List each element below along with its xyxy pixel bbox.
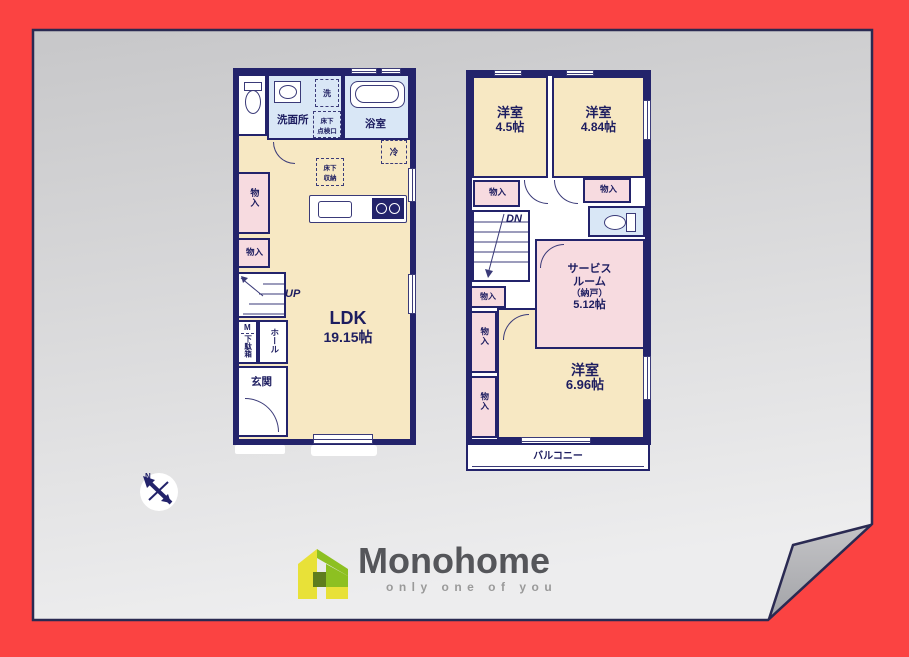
bathroom-label: 浴室 [365, 118, 386, 130]
logo-house-icon [296, 542, 350, 600]
service-door-arc [540, 244, 564, 268]
closet-2f-d: 物入 [470, 286, 506, 308]
bathtub-icon [350, 81, 405, 108]
balcony-label: バルコニー [468, 451, 648, 463]
shoe-box-1f: M 下駄箱 [237, 320, 258, 364]
entrance-step [235, 445, 285, 454]
kitchen-counter [309, 195, 407, 223]
kitchen-sink-icon [318, 201, 352, 218]
window-1f-top-b [381, 68, 401, 74]
north-arrow: N [137, 470, 181, 514]
service-room-line4: 5.12帖 [537, 299, 642, 312]
bedroom-a-label: 洋室 4.5帖 [474, 106, 546, 135]
closet-2f-a: 物入 [473, 180, 520, 207]
toilet-2f-tank [626, 213, 636, 232]
floor-hatch-label-2: 点検口 [317, 125, 337, 135]
stairs-dn-label: DN [506, 213, 522, 226]
fridge-space: 冷 [381, 140, 407, 164]
toilet-tank [244, 82, 262, 91]
service-room-line3: （納戸） [537, 288, 642, 298]
bedroom-b-size: 4.84帖 [554, 121, 643, 135]
ldk-porch [311, 445, 377, 456]
bedroom-b-label: 洋室 4.84帖 [554, 106, 643, 135]
room-toilet-1f [237, 74, 267, 136]
entrance-label: 玄関 [251, 376, 272, 388]
entrance-1f: 玄関 [237, 366, 288, 437]
room-bathroom: 浴室 [343, 74, 410, 140]
closet-2f-b: 物入 [583, 178, 631, 203]
closet-2f-e: 物入 [470, 311, 497, 373]
closet-1f-small: 物入 [237, 238, 270, 268]
window-1f-bottom [313, 434, 373, 444]
flyer-canvas: 洗面所 洗 床下 点検口 浴室 床下 収納 [0, 0, 909, 657]
hall-label: ホール [269, 328, 279, 354]
bedroom-c-door-arc [503, 314, 529, 340]
closet-1f-tall-label: 物入 [249, 188, 259, 208]
washroom-label: 洗面所 [277, 114, 309, 126]
bedroom-c-name: 洋室 [545, 362, 625, 378]
floor-storage-label-1: 床下 [324, 162, 337, 172]
window-2f-right-a [643, 100, 651, 140]
room-toilet-2f [588, 206, 645, 237]
stairs-up-label: UP [285, 288, 300, 301]
ldk-label: LDK 19.15帖 [303, 308, 393, 345]
entrance-door-arc [245, 398, 279, 432]
shoe-box-label: 下駄箱 [243, 335, 252, 358]
toilet-2f-icon [604, 215, 626, 230]
bedroom-a-name: 洋室 [474, 106, 546, 121]
logo: Monohome only one of you [296, 538, 626, 608]
closet-2f-f: 物入 [470, 376, 497, 438]
service-room-label: サービス ルーム （納戸） 5.12帖 [537, 263, 642, 311]
ldk-name: LDK [303, 308, 393, 329]
closet-2f-d-label: 物入 [480, 292, 496, 301]
closet-2f-a-label: 物入 [489, 188, 506, 198]
hall-1f: ホール [258, 320, 288, 364]
ldk-size: 19.15帖 [303, 329, 393, 345]
room-bedroom-b: 洋室 4.84帖 [552, 76, 645, 178]
window-2f-top-a [494, 70, 522, 76]
floor-storage-label-2: 収納 [324, 172, 337, 182]
closet-1f-tall: 物入 [237, 172, 270, 234]
balcony: バルコニー [466, 443, 650, 471]
closet-2f-e-label: 物入 [479, 327, 489, 346]
window-1f-top-a [351, 68, 377, 74]
service-room-line2: ルーム [537, 276, 642, 289]
laundry-label: 洗 [323, 88, 331, 99]
window-1f-right-b [408, 274, 416, 314]
bedroom-c-label: 洋室 6.96帖 [545, 362, 625, 393]
brand-name: Monohome [358, 540, 550, 582]
stove-icon [372, 198, 404, 219]
room-service: サービス ルーム （納戸） 5.12帖 [535, 239, 645, 349]
stairs-1f [237, 272, 286, 318]
window-1f-right-a [408, 168, 416, 202]
closet-2f-b-label: 物入 [600, 185, 617, 195]
bedroom-c-size: 6.96帖 [545, 378, 625, 393]
fridge-label: 冷 [390, 146, 399, 158]
laundry-space: 洗 [315, 79, 339, 107]
floor-hatch: 床下 点検口 [313, 111, 341, 138]
meter-label: M [244, 323, 251, 332]
stairs-1f-treads [239, 274, 284, 316]
paper-outline [33, 30, 872, 620]
room-washroom: 洗面所 洗 床下 点検口 [267, 74, 343, 140]
window-2f-right-b [643, 356, 651, 400]
closet-2f-f-label: 物入 [479, 392, 489, 411]
floor-hatch-label-1: 床下 [321, 115, 334, 125]
closet-1f-small-label: 物入 [246, 248, 263, 258]
floorplan-1f: 洗面所 洗 床下 点検口 浴室 床下 収納 [233, 68, 416, 445]
brand-tagline: only one of you [386, 580, 557, 594]
bedroom-a-size: 4.5帖 [474, 121, 546, 135]
floor-storage: 床下 収納 [316, 158, 344, 186]
toilet-icon [245, 90, 261, 114]
room-bedroom-a: 洋室 4.5帖 [472, 76, 548, 178]
window-2f-top-b [566, 70, 594, 76]
north-label: N [145, 472, 151, 481]
washstand-icon [274, 81, 301, 103]
bedroom-b-name: 洋室 [554, 106, 643, 121]
floorplan-2f: 洋室 4.5帖 洋室 4.84帖 物入 物入 物入 [466, 70, 651, 445]
